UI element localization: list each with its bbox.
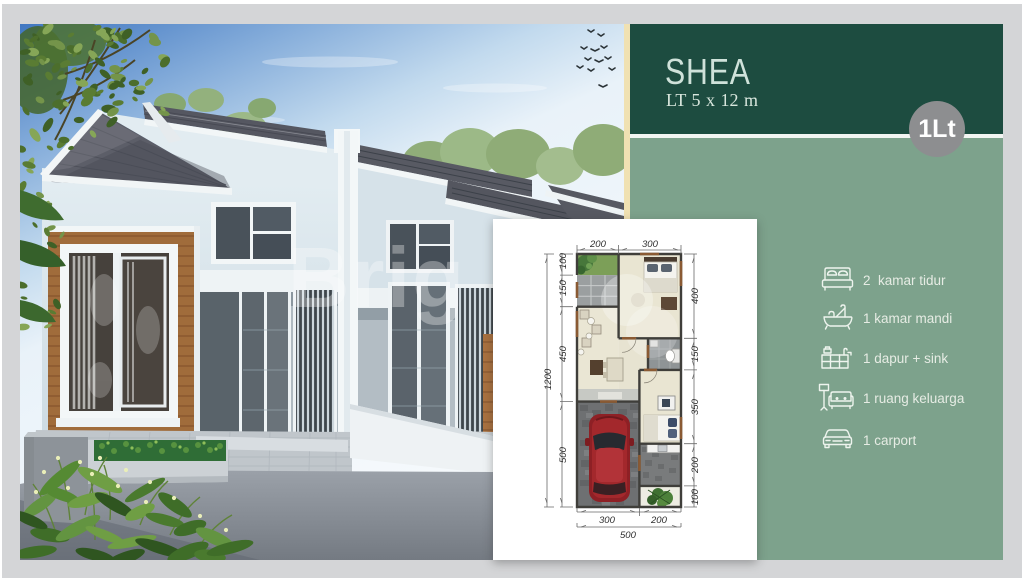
svg-text:200: 200	[589, 239, 607, 250]
svg-text:200: 200	[650, 515, 668, 526]
svg-text:500: 500	[558, 446, 569, 463]
svg-text:Brig: Brig	[288, 231, 466, 326]
svg-text:450: 450	[558, 345, 569, 362]
svg-text:300: 300	[599, 515, 616, 526]
svg-text:400: 400	[690, 287, 701, 304]
svg-text:500: 500	[620, 530, 637, 541]
svg-text:350: 350	[690, 398, 701, 415]
svg-text:150: 150	[690, 345, 701, 362]
svg-text:150: 150	[558, 279, 569, 296]
svg-text:200: 200	[690, 456, 701, 474]
svg-text:300: 300	[642, 239, 659, 250]
svg-text:1200: 1200	[543, 368, 554, 390]
svg-text:100: 100	[558, 252, 569, 269]
svg-text:100: 100	[690, 488, 701, 505]
